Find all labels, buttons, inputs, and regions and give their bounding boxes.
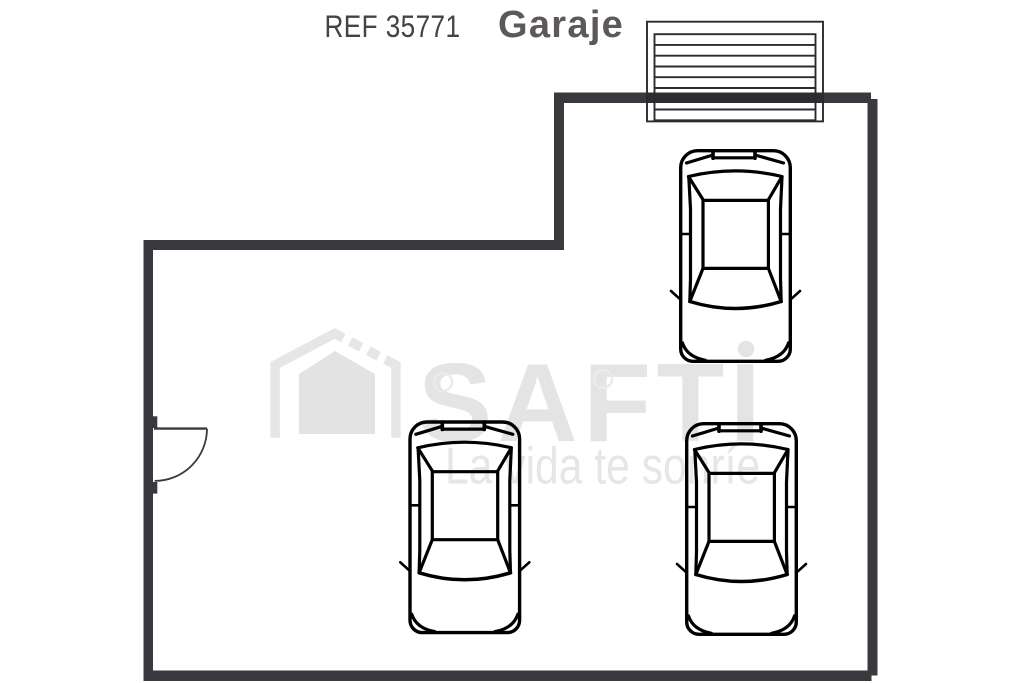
svg-text:Garaje: Garaje	[498, 4, 624, 46]
svg-text:REF 35771: REF 35771	[325, 10, 461, 45]
